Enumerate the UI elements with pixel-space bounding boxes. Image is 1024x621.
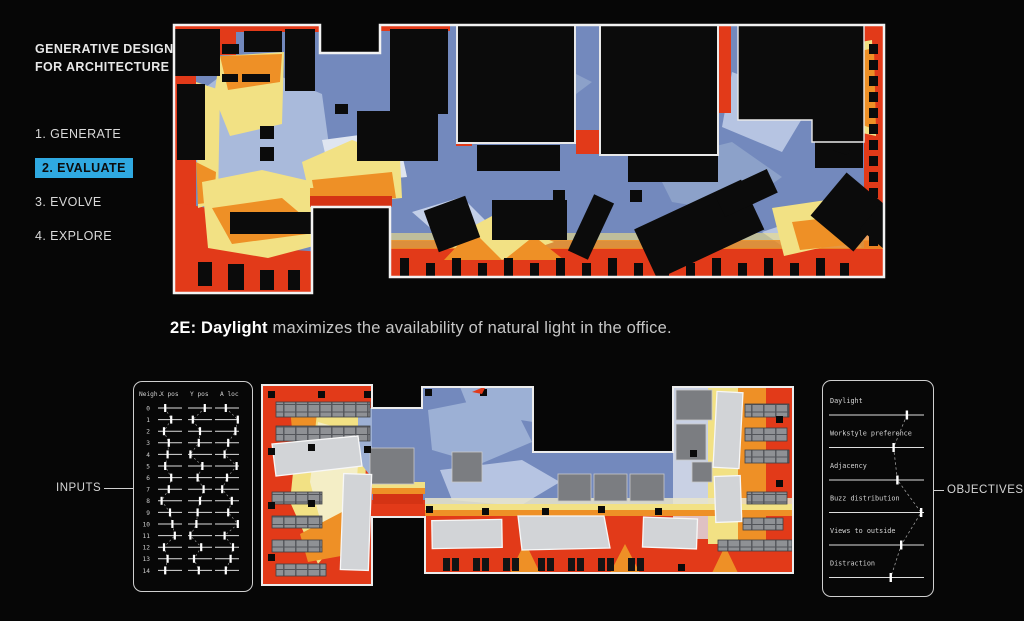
sidebar-step-evolve[interactable]: 3. EVOLVE xyxy=(35,192,109,212)
input-slider-tick xyxy=(199,427,201,435)
inputs-header: X pos xyxy=(160,391,179,398)
daylight-analysis-plan xyxy=(172,12,886,296)
step-list: 1. GENERATE2. EVALUATE3. EVOLVE4. EXPLOR… xyxy=(35,124,185,246)
objective-label: Buzz distribution xyxy=(830,495,900,503)
input-slider-tick xyxy=(189,450,191,458)
input-slider-tick xyxy=(203,485,205,493)
input-slider-tick xyxy=(195,520,197,528)
objective-label: Daylight xyxy=(830,397,863,405)
input-row-id: 11 xyxy=(143,533,151,540)
input-row-id: 13 xyxy=(143,556,151,563)
objectives-connector: OBJECTIVES xyxy=(932,484,1024,496)
inputs-header: Y pos xyxy=(190,391,209,398)
input-slider-tick xyxy=(167,555,169,563)
input-slider-tick xyxy=(199,497,201,505)
caption-rest: maximizes the availability of natural li… xyxy=(268,319,672,337)
input-slider-tick xyxy=(198,439,200,447)
input-slider-tick xyxy=(192,416,194,424)
input-slider-tick xyxy=(237,520,239,528)
input-row-id: 12 xyxy=(143,545,151,552)
objective-slider-tick xyxy=(906,411,908,420)
input-row-id: 7 xyxy=(146,487,150,494)
objective-slider-tick xyxy=(890,573,892,582)
objectives-panel: DaylightWorkstyle preferenceAdjacencyBuz… xyxy=(822,380,934,597)
input-slider-tick xyxy=(174,532,176,540)
input-row-id: 3 xyxy=(146,440,150,447)
objective-label: Adjacency xyxy=(830,462,867,470)
input-row-id: 1 xyxy=(146,417,150,424)
daylight-plan-with-furniture xyxy=(260,382,800,597)
sidebar-step-evaluate[interactable]: 2. EVALUATE xyxy=(35,158,133,178)
input-row-id: 14 xyxy=(143,568,151,575)
sidebar-step-generate[interactable]: 1. GENERATE xyxy=(35,124,128,144)
input-row-id: 9 xyxy=(146,510,150,517)
input-row-id: 10 xyxy=(143,521,151,528)
input-slider-tick xyxy=(224,450,226,458)
input-slider-tick xyxy=(197,508,199,516)
input-slider-tick xyxy=(230,555,232,563)
input-slider-tick xyxy=(167,450,169,458)
input-slider-tick xyxy=(168,439,170,447)
input-row-id: 2 xyxy=(146,429,150,436)
objective-label: Views to outside xyxy=(830,527,895,535)
inputs-label: INPUTS xyxy=(56,482,101,494)
caption: 2E: Daylight maximizes the availability … xyxy=(170,319,672,338)
input-slider-tick xyxy=(224,532,226,540)
input-slider-tick xyxy=(227,508,229,516)
caption-bold: 2E: Daylight xyxy=(170,319,268,337)
input-slider-tick xyxy=(163,427,165,435)
inputs-parallel-sliders: Neigh.X posY posA loc0123456789101112131… xyxy=(134,382,249,588)
inputs-connector: INPUTS xyxy=(56,482,133,494)
objective-slider-tick xyxy=(896,476,898,485)
objective-slider-tick xyxy=(900,541,902,550)
sidebar: GENERATIVE DESIGN FOR ARCHITECTURE 1. GE… xyxy=(35,40,185,260)
objective-slider-tick xyxy=(892,443,894,452)
input-slider-tick xyxy=(201,462,203,470)
input-slider-tick xyxy=(161,497,163,505)
input-slider-tick xyxy=(164,404,166,412)
input-slider-tick xyxy=(234,427,236,435)
input-slider-tick xyxy=(164,462,166,470)
inputs-panel: Neigh.X posY posA loc0123456789101112131… xyxy=(133,381,253,592)
input-slider-tick xyxy=(171,520,173,528)
input-slider-tick xyxy=(225,404,227,412)
input-slider-tick xyxy=(193,555,195,563)
objectives-sliders: DaylightWorkstyle preferenceAdjacencyBuz… xyxy=(823,381,930,593)
input-row-id: 0 xyxy=(146,405,150,412)
objective-slider-tick xyxy=(920,508,922,517)
inputs-header: A loc xyxy=(220,391,239,398)
input-slider-tick xyxy=(232,543,234,551)
input-slider-tick xyxy=(164,566,166,574)
input-slider-tick xyxy=(163,543,165,551)
input-slider-tick xyxy=(169,508,171,516)
input-row-id: 5 xyxy=(146,463,150,470)
page-title: GENERATIVE DESIGN FOR ARCHITECTURE xyxy=(35,40,185,76)
objectives-label: OBJECTIVES xyxy=(947,484,1024,496)
input-slider-tick xyxy=(198,566,200,574)
input-slider-tick xyxy=(168,485,170,493)
input-slider-tick xyxy=(226,474,228,482)
input-slider-tick xyxy=(170,416,172,424)
bottom-plan-heat-layer xyxy=(260,382,800,597)
input-slider-tick xyxy=(236,462,238,470)
slide: GENERATIVE DESIGN FOR ARCHITECTURE 1. GE… xyxy=(0,0,1024,621)
input-slider-tick xyxy=(170,474,172,482)
inputs-connector-line xyxy=(104,488,133,489)
input-slider-tick xyxy=(204,404,206,412)
input-slider-tick xyxy=(189,532,191,540)
input-row-id: 8 xyxy=(146,498,150,505)
input-slider-tick xyxy=(197,474,199,482)
objective-label: Distraction xyxy=(830,560,875,568)
input-row-id: 6 xyxy=(146,475,150,482)
sidebar-step-explore[interactable]: 4. EXPLORE xyxy=(35,226,119,246)
input-slider-tick xyxy=(200,543,202,551)
input-slider-tick xyxy=(221,485,223,493)
input-slider-tick xyxy=(225,566,227,574)
top-plan-heat-layer xyxy=(172,12,886,296)
input-slider-tick xyxy=(227,439,229,447)
input-row-id: 4 xyxy=(146,452,150,459)
objective-label: Workstyle preference xyxy=(830,430,912,438)
input-slider-tick xyxy=(231,497,233,505)
inputs-header: Neigh. xyxy=(139,391,161,398)
input-slider-tick xyxy=(237,416,239,424)
